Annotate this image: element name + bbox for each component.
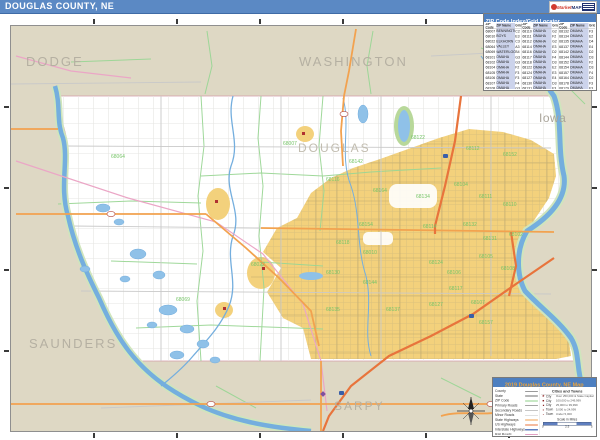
zip-code-label: 68137: [386, 307, 400, 313]
zip-table-row: 68131OMAHAF3: [522, 86, 558, 89]
legend-line-swatch: [525, 415, 538, 416]
grid-tick: [4, 187, 9, 189]
county-label: WASHINGTON: [299, 54, 408, 69]
legend-line-swatch: [525, 429, 538, 430]
grid-tick: [592, 106, 597, 108]
zip-code-label: 68022: [251, 262, 265, 268]
zip-table-row: 68179OMAHAF3: [559, 86, 595, 89]
grid-tick: [342, 433, 344, 438]
zip-code-label: 68142: [349, 159, 363, 165]
zip-code-label: 68127: [429, 302, 443, 308]
page-title: DOUGLAS COUNTY, NE: [5, 0, 114, 13]
col-zip-name: ZIP Name: [533, 23, 552, 29]
col-zip-code: ZIP Code: [485, 23, 496, 29]
zip-code-label: 68130: [326, 270, 340, 276]
grid-tick: [259, 19, 261, 24]
zip-code-label: 68104: [454, 182, 468, 188]
cunningham-lake: [398, 110, 410, 142]
zip-code-label: 68154: [359, 222, 373, 228]
grid-tick: [342, 19, 344, 24]
zip-code-label: 68117: [449, 286, 463, 292]
scale-ticks: 02.55: [542, 425, 593, 428]
col-zip-name: ZIP Name: [570, 23, 589, 29]
map-legend: 2019 Douglas County, NE Map County State: [492, 377, 597, 437]
zip-code-label: 68116: [326, 177, 340, 183]
grid-tick: [4, 269, 9, 271]
county-label: SAUNDERS: [29, 336, 117, 351]
zip-code-label: 68069: [176, 297, 190, 303]
zip-code-label: 68102: [509, 232, 523, 238]
zip-code-label: 68144: [363, 280, 377, 286]
col-grid: Grid: [588, 24, 595, 28]
zip-code-label: 68010: [363, 250, 377, 256]
zip-code-label: 68112: [466, 146, 480, 152]
legend-line-swatch: [525, 405, 538, 406]
zip-code-label: 68157: [479, 320, 493, 326]
title-bar: DOUGLAS COUNTY, NE: [0, 0, 600, 14]
zip-code-label: 68124: [429, 260, 443, 266]
legend-line-swatch: [525, 396, 538, 397]
zip-table-column-group: ZIP CodeZIP NameGrid 68110OMAHAG268111OM…: [522, 23, 559, 89]
grid-tick: [93, 433, 95, 438]
legend-line-swatch: [525, 400, 538, 401]
legend-line-swatch: [525, 434, 538, 435]
zip-code-label: 68118: [336, 240, 350, 246]
zip-code-label: 68132: [463, 222, 477, 228]
zip-code-label: 68107: [471, 300, 485, 306]
city-class-row: ■ Town Under 5,000: [541, 412, 594, 416]
zip-code-label: 68110: [503, 202, 517, 208]
legend-line-samples: County State ZIP Code: [494, 388, 539, 435]
zip-table-column-group: ZIP CodeZIP NameGrid 68132OMAHAF368134OM…: [559, 23, 595, 89]
zip-table-title-bar: ZIP Code Index/Grid Locator: [484, 14, 596, 22]
zip-table-column-group: ZIP CodeZIP NameGrid 68007BENNINGTONC268…: [485, 23, 522, 89]
legend-line-swatch: [525, 420, 538, 421]
zip-code-label: 68111: [479, 194, 492, 200]
grid-tick: [93, 19, 95, 24]
col-grid: Grid: [515, 24, 522, 28]
legend-row: Rail Roads: [495, 432, 538, 435]
grid-tick: [4, 106, 9, 108]
grid-tick: [592, 350, 597, 352]
county-label: Iowa: [539, 111, 566, 125]
legend-line-swatch: [525, 391, 538, 392]
zip-code-label: 68135: [326, 307, 340, 313]
col-zip-code: ZIP Code: [559, 23, 570, 29]
county-label: DOUGLAS: [298, 141, 371, 155]
grid-tick: [592, 187, 597, 189]
scale-tick: 5: [591, 425, 593, 428]
grid-tick: [592, 269, 597, 271]
legend-title: 2019 Douglas County, NE Map: [493, 381, 596, 387]
col-zip-name: ZIP Name: [496, 23, 515, 29]
zip-index-table: ZIP Code Index/Grid Locator ZIP CodeZIP …: [483, 13, 597, 91]
legend-line-swatch: [525, 424, 538, 425]
zip-code-label: 68152: [503, 152, 517, 158]
zip-code-label: 68108: [501, 266, 515, 272]
grid-tick: [176, 19, 178, 24]
zip-code-label: 68064: [111, 154, 125, 160]
county-label: SARPY: [334, 399, 385, 413]
zip-code-label: 68122: [411, 135, 425, 141]
logo-badge: [582, 3, 595, 11]
zip-code-label: 68164: [373, 188, 387, 194]
grid-tick: [425, 19, 427, 24]
zip-code-label: 68007: [283, 141, 297, 147]
grid-tick: [4, 350, 9, 352]
col-grid: Grid: [552, 24, 559, 28]
zorinsky-lake: [299, 272, 323, 280]
scale-tick: 2.5: [565, 425, 569, 428]
zip-code-label: 68114: [423, 224, 437, 230]
grid-tick: [176, 433, 178, 438]
map-page: DOUGLAS COUNTY, NE MarketMAPS: [0, 0, 600, 440]
cities-towns-list: ★ City Over 250,000 & State Capital ■ Ci…: [541, 395, 594, 417]
grid-tick: [425, 433, 427, 438]
zip-code-label: 68134: [416, 194, 430, 200]
brand-logo: MarketMAPS: [549, 1, 597, 13]
zip-table-title: ZIP Code Index/Grid Locator: [484, 18, 596, 22]
grid-tick: [259, 433, 261, 438]
zip-code-label: 68106: [447, 270, 461, 276]
scale-tick: 0: [542, 425, 544, 428]
zip-code-label: 68105: [479, 254, 493, 260]
legend-title-bar: 2019 Douglas County, NE Map: [493, 378, 596, 387]
logo-market-text: Market: [557, 5, 572, 10]
county-label: DODGE: [26, 54, 84, 69]
boys-town-enclave: [363, 232, 393, 245]
zip-code-label: 68131: [483, 236, 497, 242]
zip-table-row: 68108OMAHAG3: [485, 86, 521, 89]
col-zip-code: ZIP Code: [522, 23, 533, 29]
legend-line-swatch: [525, 410, 538, 411]
